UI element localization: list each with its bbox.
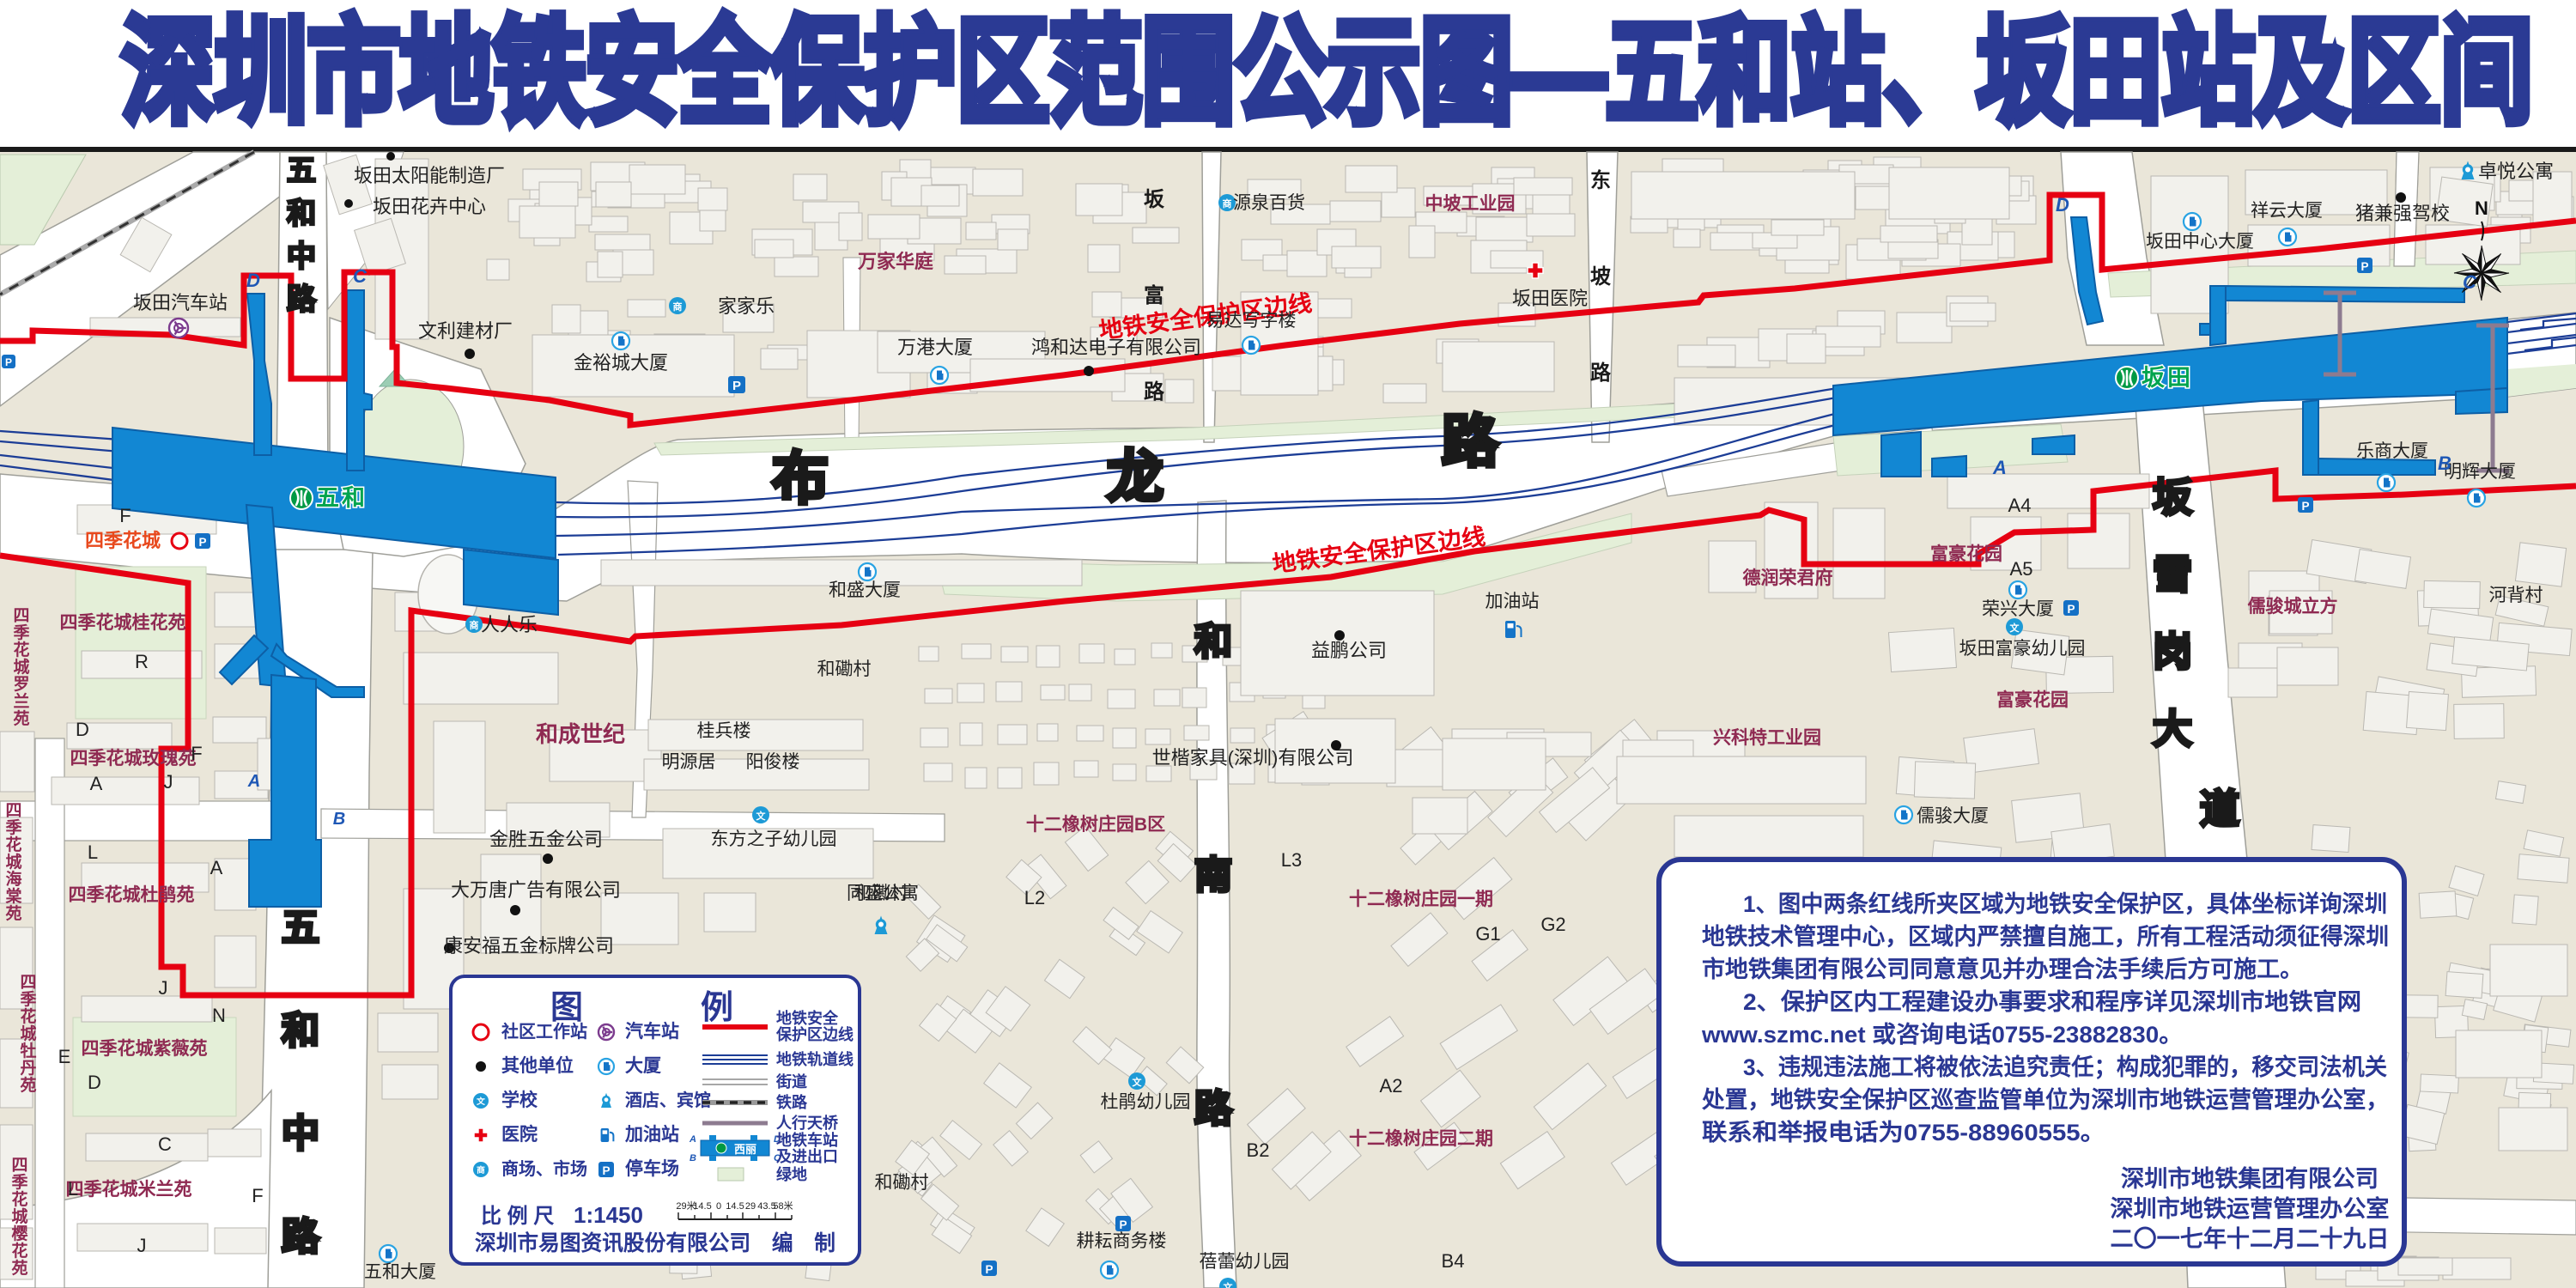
svg-text:四季花城桂花苑: 四季花城桂花苑 — [60, 612, 186, 633]
svg-text:路: 路 — [287, 283, 317, 316]
svg-text:商: 商 — [470, 619, 479, 631]
svg-text:富豪花园: 富豪花园 — [1996, 690, 2069, 710]
svg-text:万家华庭: 万家华庭 — [857, 251, 933, 272]
svg-text:四季花城米兰苑: 四季花城米兰苑 — [66, 1179, 192, 1200]
svg-text:N: N — [212, 1005, 226, 1026]
svg-text:金裕城大厦: 金裕城大厦 — [574, 352, 668, 374]
svg-text:季: 季 — [5, 818, 21, 837]
svg-text:加油站: 加油站 — [1485, 592, 1540, 611]
svg-text:荣兴大厦: 荣兴大厦 — [1982, 599, 2054, 619]
svg-text:B4: B4 — [1442, 1250, 1465, 1272]
svg-text:www.szmc.net 或咨询电话0755-2388283: www.szmc.net 或咨询电话0755-23882830。 — [1701, 1022, 2183, 1048]
svg-text:J: J — [164, 771, 173, 793]
svg-text:四: 四 — [13, 607, 29, 625]
svg-text:D: D — [76, 719, 89, 740]
svg-text:四季花城玫瑰苑: 四季花城玫瑰苑 — [70, 748, 197, 769]
svg-text:医院: 医院 — [501, 1124, 538, 1145]
svg-text:季: 季 — [20, 990, 36, 1009]
svg-text:坡: 坡 — [1590, 265, 1611, 289]
svg-text:B: B — [2438, 453, 2451, 474]
svg-text:E: E — [58, 1046, 71, 1067]
svg-text:五和: 五和 — [316, 485, 368, 511]
svg-text:P: P — [2301, 500, 2309, 513]
svg-text:布: 布 — [772, 447, 829, 510]
svg-text:地铁安全: 地铁安全 — [776, 1009, 839, 1027]
svg-text:同盛公寓: 同盛公寓 — [847, 884, 919, 903]
svg-text:兰: 兰 — [13, 691, 29, 711]
svg-text:P: P — [602, 1164, 610, 1177]
svg-text:康安福五金标牌公司: 康安福五金标牌公司 — [444, 935, 614, 957]
svg-text:四季花城: 四季花城 — [85, 530, 161, 551]
svg-text:A5: A5 — [2010, 558, 2033, 580]
svg-text:B: B — [690, 1153, 696, 1163]
svg-text:深圳市地铁安全保护区范围公示图—五和站、坂田站及区间: 深圳市地铁安全保护区范围公示图—五和站、坂田站及区间 — [122, 8, 2533, 137]
svg-text:道: 道 — [2200, 787, 2239, 831]
svg-text:文: 文 — [1224, 1281, 1234, 1288]
svg-text:中坡工业园: 中坡工业园 — [1425, 193, 1516, 214]
svg-text:杜鹃幼儿园: 杜鹃幼儿园 — [1101, 1092, 1191, 1112]
svg-text:南: 南 — [1194, 854, 1232, 896]
svg-text:乐商大厦: 乐商大厦 — [2356, 441, 2428, 461]
svg-text:五和大厦: 五和大厦 — [364, 1262, 436, 1282]
svg-text:大万唐广告有限公司: 大万唐广告有限公司 — [451, 879, 621, 901]
svg-text:商: 商 — [1223, 197, 1232, 210]
svg-text:D: D — [2056, 194, 2069, 216]
svg-text:和盛大厦: 和盛大厦 — [829, 580, 901, 600]
svg-text:D: D — [246, 270, 260, 291]
svg-text:酒店、宾馆: 酒店、宾馆 — [625, 1090, 711, 1110]
svg-text:铁路: 铁路 — [776, 1093, 808, 1111]
svg-text:商场、市场: 商场、市场 — [501, 1158, 587, 1179]
svg-text:停车场: 停车场 — [625, 1158, 679, 1179]
svg-text:学校: 学校 — [501, 1090, 538, 1110]
svg-text:P: P — [732, 379, 741, 393]
svg-text:富豪花园: 富豪花园 — [1930, 544, 2002, 564]
svg-text:路: 路 — [1194, 1088, 1233, 1130]
svg-text:中: 中 — [282, 1113, 319, 1155]
svg-text:苑: 苑 — [20, 1075, 36, 1095]
svg-text:城: 城 — [13, 657, 29, 677]
svg-text:花: 花 — [11, 1241, 27, 1261]
svg-text:二〇一七年十二月二十九日: 二〇一七年十二月二十九日 — [2111, 1225, 2390, 1252]
svg-text:路: 路 — [1590, 361, 1612, 385]
svg-text:F: F — [119, 505, 131, 526]
svg-text:兴科特工业园: 兴科特工业园 — [1713, 727, 1821, 748]
svg-text:十二橡树庄园二期: 十二橡树庄园二期 — [1349, 1128, 1493, 1149]
svg-text:G1: G1 — [1475, 923, 1500, 945]
svg-text:保护区边线: 保护区边线 — [775, 1025, 854, 1043]
svg-text:J: J — [137, 1235, 147, 1256]
svg-text:和磡村: 和磡村 — [817, 659, 872, 679]
svg-text:明源居: 明源居 — [662, 752, 716, 772]
svg-text:其他单位: 其他单位 — [501, 1055, 574, 1076]
svg-text:源泉百货: 源泉百货 — [1233, 193, 1305, 213]
svg-text:雪: 雪 — [2153, 552, 2192, 597]
svg-text:1、图中两条红线所夹区域为地铁安全保护区，具体坐标详询深圳: 1、图中两条红线所夹区域为地铁安全保护区，具体坐标详询深圳 — [1743, 890, 2387, 917]
svg-text:和: 和 — [287, 197, 316, 230]
svg-text:文: 文 — [2010, 622, 2020, 634]
svg-text:人人乐: 人人乐 — [481, 614, 538, 635]
svg-text:樱: 樱 — [11, 1224, 27, 1243]
svg-text:猪兼强驾校: 猪兼强驾校 — [2355, 203, 2450, 224]
svg-text:0: 0 — [716, 1201, 721, 1212]
svg-text:东: 东 — [1590, 168, 1611, 192]
svg-text:A: A — [210, 857, 223, 878]
svg-text:祥云大厦: 祥云大厦 — [2251, 201, 2323, 221]
svg-text:四季花城紫薇苑: 四季花城紫薇苑 — [82, 1038, 208, 1059]
svg-text:十二橡树庄园一期: 十二橡树庄园一期 — [1349, 889, 1493, 909]
svg-text:地铁轨道线: 地铁轨道线 — [776, 1050, 854, 1068]
svg-text:例: 例 — [701, 990, 733, 1026]
svg-text:商: 商 — [673, 301, 683, 313]
svg-text:五: 五 — [287, 155, 316, 187]
svg-text:J: J — [159, 977, 168, 999]
svg-text:和成世纪: 和成世纪 — [536, 721, 625, 747]
svg-text:桂兵楼: 桂兵楼 — [697, 721, 751, 741]
svg-text:R: R — [135, 651, 149, 672]
svg-text:耕耘商务楼: 耕耘商务楼 — [1077, 1231, 1167, 1251]
svg-text:及进出口: 及进出口 — [776, 1147, 838, 1165]
svg-text:文: 文 — [477, 1096, 485, 1107]
svg-text:坂田汽车站: 坂田汽车站 — [133, 292, 228, 313]
svg-text:坂田: 坂田 — [2142, 365, 2193, 391]
svg-text:五: 五 — [282, 907, 319, 949]
svg-text:四: 四 — [11, 1157, 27, 1175]
svg-text:花: 花 — [11, 1189, 27, 1209]
svg-text:花: 花 — [5, 835, 21, 854]
svg-text:路: 路 — [1442, 410, 1499, 473]
svg-text:德润荣君府: 德润荣君府 — [1743, 568, 1833, 588]
svg-text:街道: 街道 — [775, 1072, 807, 1091]
svg-text:处置，地铁安全保护区巡查监管单位为深圳市地铁运营管理办公室，: 处置，地铁安全保护区巡查监管单位为深圳市地铁运营管理办公室， — [1701, 1086, 2389, 1113]
svg-text:A: A — [689, 1134, 696, 1145]
svg-text:14.5: 14.5 — [726, 1201, 744, 1212]
svg-text:岗: 岗 — [2153, 629, 2192, 674]
svg-text:家家乐: 家家乐 — [718, 295, 775, 317]
svg-text:F: F — [252, 1185, 263, 1206]
svg-text:加油站: 加油站 — [624, 1124, 679, 1145]
svg-text:坂田中心大厦: 坂田中心大厦 — [2146, 232, 2254, 252]
svg-text:L: L — [68, 1178, 78, 1200]
svg-text:3、违规违法施工将被依法追究责任；构成犯罪的，移交司法机关: 3、违规违法施工将被依法追究责任；构成犯罪的，移交司法机关 — [1743, 1054, 2387, 1080]
svg-text:P: P — [2360, 260, 2368, 273]
svg-text:明辉大厦: 明辉大厦 — [2444, 462, 2516, 482]
svg-text:城: 城 — [20, 1024, 36, 1043]
svg-text:图: 图 — [550, 990, 583, 1026]
svg-text:大厦: 大厦 — [625, 1056, 661, 1076]
svg-text:A2: A2 — [1380, 1075, 1403, 1097]
svg-text:和磡村: 和磡村 — [875, 1173, 929, 1193]
svg-text:14.5: 14.5 — [693, 1201, 711, 1212]
svg-text:四季花城杜鹃苑: 四季花城杜鹃苑 — [69, 884, 195, 905]
svg-text:坂田太阳能制造厂: 坂田太阳能制造厂 — [354, 165, 505, 186]
svg-text:四: 四 — [20, 974, 36, 992]
svg-text:2、保护区内工程建设办事要求和程序详见深圳市地铁官网: 2、保护区内工程建设办事要求和程序详见深圳市地铁官网 — [1743, 988, 2361, 1015]
svg-text:绿地: 绿地 — [776, 1165, 807, 1183]
svg-text:儒骏城立方: 儒骏城立方 — [2248, 596, 2338, 617]
svg-text:比 例 尺: 比 例 尺 — [481, 1205, 554, 1228]
svg-text:深圳市易图资讯股份有限公司 编 制: 深圳市易图资讯股份有限公司 编 制 — [475, 1230, 835, 1255]
svg-text:L3: L3 — [1281, 849, 1302, 871]
svg-text:鸿和达电子有限公司: 鸿和达电子有限公司 — [1031, 337, 1201, 358]
svg-text:文: 文 — [756, 810, 767, 822]
svg-text:坂田花卉中心: 坂田花卉中心 — [373, 196, 486, 217]
svg-text:地铁技术管理中心，区域内严禁擅自施工，所有工程活动须征得深圳: 地铁技术管理中心，区域内严禁擅自施工，所有工程活动须征得深圳 — [1702, 923, 2389, 950]
svg-text:P: P — [985, 1263, 993, 1276]
svg-text:丹: 丹 — [20, 1060, 36, 1078]
svg-text:儒骏大厦: 儒骏大厦 — [1917, 806, 1989, 826]
svg-text:P: P — [2067, 603, 2075, 616]
svg-text:P: P — [5, 356, 12, 368]
svg-text:益鹏公司: 益鹏公司 — [1311, 640, 1387, 661]
svg-text:河背村: 河背村 — [2489, 586, 2543, 605]
svg-text:季: 季 — [11, 1173, 27, 1192]
svg-text:L2: L2 — [1024, 887, 1045, 908]
svg-text:罗: 罗 — [13, 675, 29, 694]
svg-text:富: 富 — [1144, 283, 1164, 307]
svg-text:P: P — [198, 536, 206, 549]
svg-text:汽车站: 汽车站 — [625, 1021, 679, 1042]
svg-text:A: A — [90, 773, 103, 794]
svg-text:深圳市地铁运营管理办公室: 深圳市地铁运营管理办公室 — [2111, 1195, 2390, 1222]
svg-text:棠: 棠 — [4, 886, 22, 906]
svg-text:海: 海 — [5, 869, 21, 889]
svg-text:城: 城 — [11, 1206, 27, 1226]
svg-text:坂田医院: 坂田医院 — [1512, 288, 1588, 309]
svg-text:四: 四 — [5, 802, 21, 820]
svg-text:蓓蕾幼儿园: 蓓蕾幼儿园 — [1200, 1252, 1290, 1272]
svg-text:A: A — [247, 772, 260, 791]
svg-text:阳俊楼: 阳俊楼 — [746, 752, 800, 772]
svg-text:N: N — [2475, 197, 2488, 219]
svg-text:A4: A4 — [2008, 495, 2032, 516]
svg-text:苑: 苑 — [11, 1258, 27, 1278]
svg-text:58米: 58米 — [773, 1200, 793, 1212]
svg-text:B2: B2 — [1247, 1139, 1270, 1161]
svg-text:L: L — [88, 841, 98, 863]
svg-text:苑: 苑 — [13, 708, 29, 728]
svg-text:F: F — [191, 743, 202, 764]
svg-text:C: C — [158, 1133, 172, 1155]
svg-text:G2: G2 — [1540, 914, 1565, 935]
svg-text:坂: 坂 — [1144, 188, 1165, 211]
svg-text:1:1450: 1:1450 — [574, 1202, 643, 1228]
svg-text:29: 29 — [745, 1201, 756, 1212]
svg-text:路: 路 — [1144, 380, 1165, 404]
svg-text:市地铁集团有限公司同意意见并办理合法手续后方可施工。: 市地铁集团有限公司同意意见并办理合法手续后方可施工。 — [1702, 956, 2303, 982]
svg-text:大: 大 — [2153, 707, 2192, 751]
svg-text:和: 和 — [1194, 621, 1232, 663]
svg-text:联系和举报电话为0755-88960555。: 联系和举报电话为0755-88960555。 — [1702, 1119, 2105, 1145]
svg-text:和: 和 — [282, 1010, 319, 1052]
svg-text:牡: 牡 — [20, 1042, 36, 1060]
svg-text:季: 季 — [13, 623, 29, 642]
svg-text:D: D — [88, 1072, 101, 1093]
svg-text:卓悦公寓: 卓悦公寓 — [2478, 161, 2554, 182]
svg-text:文: 文 — [1133, 1076, 1143, 1088]
svg-text:P: P — [1119, 1218, 1127, 1231]
svg-text:C: C — [2463, 271, 2477, 293]
svg-text:万港大厦: 万港大厦 — [897, 337, 973, 358]
svg-text:金胜五金公司: 金胜五金公司 — [489, 829, 603, 850]
svg-text:易达写字楼: 易达写字楼 — [1206, 311, 1297, 331]
svg-text:路: 路 — [282, 1216, 320, 1258]
svg-text:坂: 坂 — [2153, 475, 2192, 519]
svg-text:坂田富豪幼儿园: 坂田富豪幼儿园 — [1959, 639, 2086, 659]
svg-text:深圳市地铁集团有限公司: 深圳市地铁集团有限公司 — [2121, 1165, 2379, 1192]
svg-text:东方之子幼儿园: 东方之子幼儿园 — [711, 829, 837, 849]
svg-text:地铁车站: 地铁车站 — [776, 1131, 838, 1149]
svg-text:C: C — [353, 265, 368, 287]
svg-text:花: 花 — [13, 640, 29, 659]
svg-text:世楷家具(深圳)有限公司: 世楷家具(深圳)有限公司 — [1152, 747, 1354, 769]
svg-text:人行天桥: 人行天桥 — [776, 1114, 839, 1132]
svg-text:A: A — [1992, 457, 2007, 478]
svg-text:B: B — [333, 810, 345, 829]
svg-text:商: 商 — [477, 1164, 485, 1176]
svg-text:十二橡树庄园B区: 十二橡树庄园B区 — [1026, 814, 1165, 835]
svg-text:文利建材厂: 文利建材厂 — [418, 320, 513, 342]
svg-text:中: 中 — [287, 240, 316, 273]
svg-text:苑: 苑 — [5, 903, 21, 923]
svg-text:城: 城 — [5, 852, 21, 872]
svg-text:龙: 龙 — [1107, 445, 1163, 508]
svg-text:社区工作站: 社区工作站 — [501, 1021, 587, 1042]
svg-text:西丽: 西丽 — [734, 1143, 756, 1156]
svg-text:花: 花 — [20, 1006, 36, 1026]
